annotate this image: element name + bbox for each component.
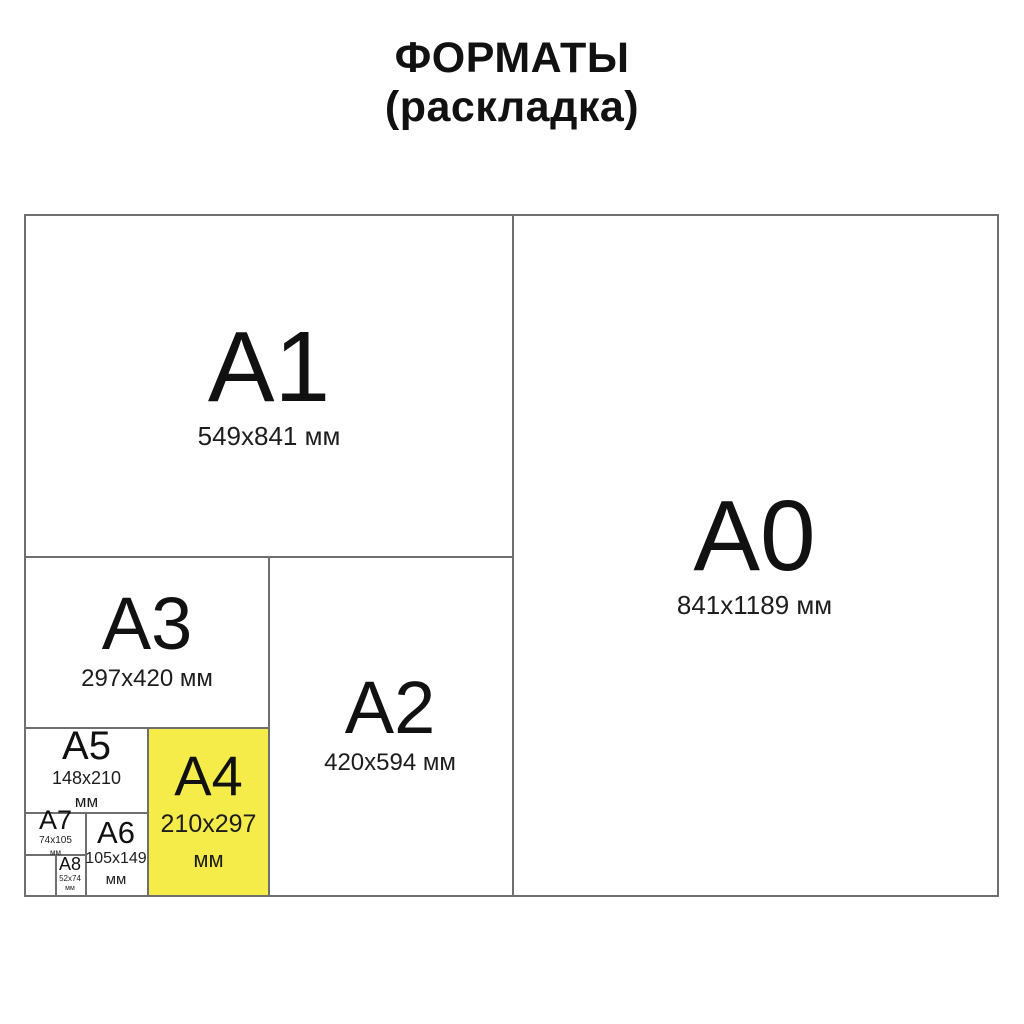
page-title: ФОРМАТЫ (раскладка) [0, 34, 1024, 131]
format-a4-highlighted: A4 210x297 мм [147, 727, 270, 895]
format-a6-size-line: мм [106, 871, 127, 889]
format-a0: A0 841x1189 мм [512, 216, 997, 895]
page-title-line-1: ФОРМАТЫ [0, 34, 1024, 83]
format-a8-size-line: мм [65, 885, 75, 893]
format-a1-size-line: 549x841 мм [198, 421, 341, 452]
format-a7: A7 74x105 мм [26, 812, 85, 854]
format-a0-size-line: 841x1189 мм [677, 590, 832, 621]
format-a8-label: A8 [59, 856, 81, 873]
format-a4-size-line: мм [193, 847, 223, 873]
format-a0-label: A0 [693, 489, 815, 584]
format-a3-label: A3 [102, 589, 193, 659]
format-a0-size: 841x1189 мм [677, 590, 832, 621]
format-a6-size-line: 105x149 [85, 849, 146, 868]
format-a8-size: 52x74 мм [59, 874, 81, 893]
format-a2-label: A2 [345, 673, 436, 743]
format-a5: A5 148x210 мм [26, 727, 147, 812]
format-a5-size-line: 148x210 [52, 768, 121, 790]
format-a6-label: A6 [97, 818, 135, 847]
format-a2: A2 420x594 мм [268, 556, 512, 895]
format-a5-label: A5 [62, 727, 111, 765]
format-a6-size: 105x149 мм [85, 849, 146, 889]
format-a2-size: 420x594 мм [324, 749, 456, 778]
format-a1: A1 549x841 мм [26, 216, 512, 556]
format-a3-size-line: 297x420 мм [81, 665, 213, 694]
format-a8: A8 52x74 мм [55, 854, 85, 895]
format-a1-size: 549x841 мм [198, 421, 341, 452]
format-a4-label: A4 [174, 749, 243, 802]
format-a5-size-line: мм [75, 792, 98, 812]
format-a3-size: 297x420 мм [81, 665, 213, 694]
format-a8-size-line: 52x74 [59, 874, 81, 884]
format-a4-size: 210x297 мм [161, 809, 257, 873]
format-a4-size-line: 210x297 [161, 809, 257, 839]
page-title-line-2: (раскладка) [0, 83, 1024, 132]
format-a7-size-line: 74x105 [39, 835, 72, 847]
format-a6: A6 105x149 мм [85, 812, 147, 895]
format-a7-label: A7 [39, 808, 72, 834]
format-a2-size-line: 420x594 мм [324, 749, 456, 778]
format-layout-diagram: A1 549x841 мм A0 841x1189 мм A3 297x420 … [24, 214, 999, 897]
format-a3: A3 297x420 мм [26, 556, 268, 727]
paper-formats-infographic: ФОРМАТЫ (раскладка) A1 549x841 мм A0 841… [0, 0, 1024, 1024]
format-a1-label: A1 [208, 320, 330, 415]
